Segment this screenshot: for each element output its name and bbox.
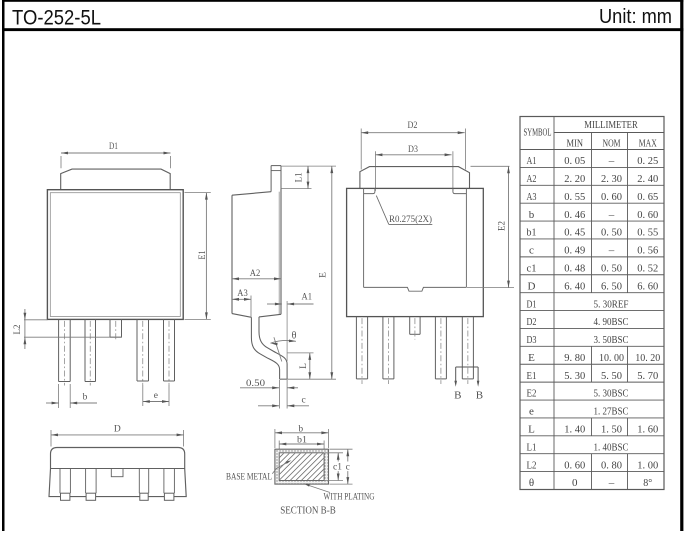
svg-text:0. 55: 0. 55 [637, 227, 658, 239]
svg-text:c: c [346, 462, 350, 472]
svg-text:9. 80: 9. 80 [564, 352, 585, 364]
svg-text:–: – [608, 155, 615, 167]
svg-text:A3: A3 [237, 289, 248, 299]
svg-text:c: c [529, 245, 534, 257]
svg-text:10. 20: 10. 20 [635, 352, 660, 364]
svg-text:MIN: MIN [567, 137, 584, 149]
svg-text:D2: D2 [527, 316, 537, 328]
svg-text:0. 56: 0. 56 [637, 245, 658, 257]
svg-text:E1: E1 [527, 370, 537, 382]
svg-text:L2: L2 [13, 324, 23, 334]
svg-text:NOM: NOM [603, 137, 621, 149]
svg-text:3. 50BSC: 3. 50BSC [594, 334, 629, 346]
svg-text:L2: L2 [527, 459, 537, 471]
svg-text:R0.275(2X): R0.275(2X) [389, 214, 432, 224]
svg-text:1. 40: 1. 40 [564, 424, 585, 436]
svg-text:L1: L1 [295, 172, 305, 182]
svg-text:0. 50: 0. 50 [601, 227, 622, 239]
svg-text:1. 27BSC: 1. 27BSC [594, 406, 629, 418]
svg-text:5. 70: 5. 70 [637, 370, 658, 382]
svg-text:0: 0 [572, 477, 578, 489]
svg-text:0. 60: 0. 60 [637, 209, 658, 221]
svg-text:2. 30: 2. 30 [601, 173, 622, 185]
svg-text:1. 40BSC: 1. 40BSC [594, 441, 629, 453]
svg-text:6. 60: 6. 60 [637, 280, 658, 292]
svg-text:–: – [608, 477, 615, 489]
svg-text:E2: E2 [527, 388, 537, 400]
svg-text:A2: A2 [527, 173, 537, 185]
svg-text:e: e [154, 391, 158, 401]
svg-text:0. 46: 0. 46 [564, 209, 585, 221]
svg-text:θ: θ [292, 331, 297, 342]
svg-text:MILLIMETER: MILLIMETER [584, 119, 638, 131]
svg-text:0. 49: 0. 49 [564, 245, 585, 257]
svg-text:L: L [528, 424, 535, 436]
svg-text:5. 30BSC: 5. 30BSC [594, 388, 629, 400]
svg-text:1. 00: 1. 00 [637, 459, 658, 471]
svg-text:2. 20: 2. 20 [564, 173, 585, 185]
svg-text:D3: D3 [527, 334, 537, 346]
svg-text:–: – [608, 245, 615, 257]
svg-text:0. 60: 0. 60 [564, 459, 585, 471]
svg-text:TO-252-5L: TO-252-5L [12, 6, 101, 30]
svg-text:0. 52: 0. 52 [637, 263, 658, 275]
svg-text:L: L [299, 363, 309, 369]
svg-text:MAX: MAX [639, 137, 657, 149]
svg-text:e: e [529, 406, 534, 418]
svg-text:E1: E1 [198, 250, 208, 259]
svg-text:4. 90BSC: 4. 90BSC [594, 316, 629, 328]
svg-text:Unit: mm: Unit: mm [599, 6, 672, 28]
svg-text:0. 48: 0. 48 [564, 263, 585, 275]
svg-text:5. 30: 5. 30 [564, 370, 585, 382]
svg-text:8°: 8° [643, 477, 652, 489]
svg-text:E: E [528, 352, 535, 364]
svg-text:1. 50: 1. 50 [601, 424, 622, 436]
svg-text:A2: A2 [250, 269, 261, 279]
svg-text:E2: E2 [497, 221, 507, 231]
svg-text:D3: D3 [408, 145, 418, 155]
svg-text:0. 80: 0. 80 [601, 459, 622, 471]
svg-text:D2: D2 [408, 121, 418, 131]
svg-text:b: b [83, 393, 88, 403]
svg-text:0. 05: 0. 05 [564, 155, 585, 167]
svg-text:D1: D1 [527, 298, 537, 310]
svg-text:0. 45: 0. 45 [564, 227, 585, 239]
svg-text:A3: A3 [527, 191, 537, 203]
svg-text:B: B [454, 389, 461, 401]
svg-text:0. 50: 0. 50 [601, 263, 622, 275]
svg-text:c1: c1 [527, 263, 537, 275]
svg-text:D: D [528, 280, 536, 292]
svg-text:0. 55: 0. 55 [564, 191, 585, 203]
svg-text:c1: c1 [333, 462, 342, 472]
svg-text:5. 30REF: 5. 30REF [594, 298, 629, 310]
svg-text:A1: A1 [302, 293, 313, 303]
svg-text:BASE METAL: BASE METAL [226, 472, 272, 482]
svg-text:D1: D1 [109, 142, 118, 152]
svg-text:θ: θ [529, 477, 534, 489]
svg-text:10. 00: 10. 00 [599, 352, 624, 364]
svg-text:SECTION B-B: SECTION B-B [280, 505, 336, 517]
svg-text:0. 65: 0. 65 [637, 191, 658, 203]
svg-text:WITH PLATING: WITH PLATING [324, 492, 375, 502]
svg-text:b: b [529, 209, 535, 221]
svg-text:6. 40: 6. 40 [564, 280, 585, 292]
svg-text:L1: L1 [527, 441, 537, 453]
svg-text:6. 50: 6. 50 [601, 280, 622, 292]
svg-text:SYMBOL: SYMBOL [524, 126, 552, 138]
svg-text:A1: A1 [527, 155, 537, 167]
svg-text:c: c [301, 396, 305, 406]
svg-text:5. 50: 5. 50 [601, 370, 622, 382]
svg-text:2. 40: 2. 40 [637, 173, 658, 185]
svg-text:0. 60: 0. 60 [601, 191, 622, 203]
svg-text:0.50: 0.50 [246, 379, 265, 389]
svg-text:b1: b1 [527, 227, 537, 239]
svg-text:–: – [608, 209, 615, 221]
svg-text:D: D [114, 425, 121, 435]
svg-text:0. 25: 0. 25 [637, 155, 658, 167]
svg-text:E: E [319, 272, 329, 278]
svg-text:1. 60: 1. 60 [637, 424, 658, 436]
svg-text:B: B [476, 389, 483, 401]
